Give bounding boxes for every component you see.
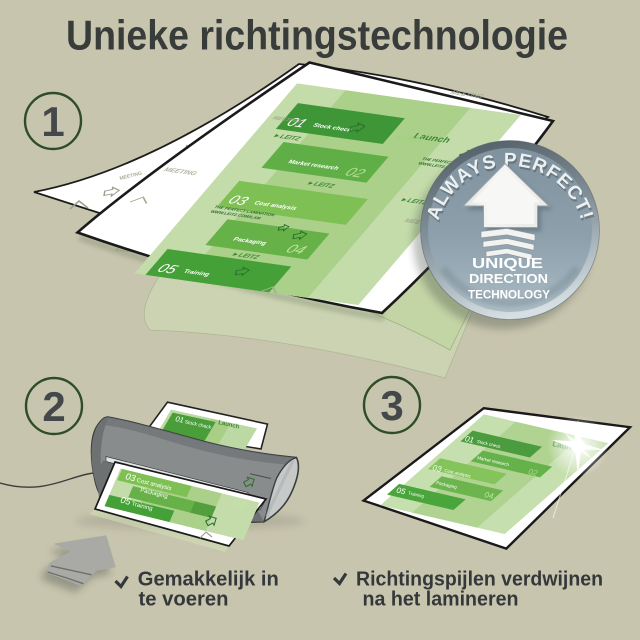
- svg-text:3: 3: [380, 382, 403, 429]
- svg-text:1: 1: [41, 98, 64, 145]
- svg-text:Gemakkelijk in: Gemakkelijk in: [138, 569, 279, 591]
- svg-text:TECHNOLOGY: TECHNOLOGY: [468, 287, 550, 301]
- svg-text:2: 2: [42, 383, 65, 430]
- svg-text:DIRECTION: DIRECTION: [469, 272, 548, 286]
- svg-text:na het lamineren: na het lamineren: [363, 589, 519, 611]
- svg-text:UNIQUE: UNIQUE: [472, 256, 543, 272]
- svg-text:Richtingspijlen verdwijnen: Richtingspijlen verdwijnen: [356, 569, 603, 591]
- svg-text:te voeren: te voeren: [139, 589, 229, 611]
- svg-text:Unieke richtingstechnologie: Unieke richtingstechnologie: [66, 12, 568, 59]
